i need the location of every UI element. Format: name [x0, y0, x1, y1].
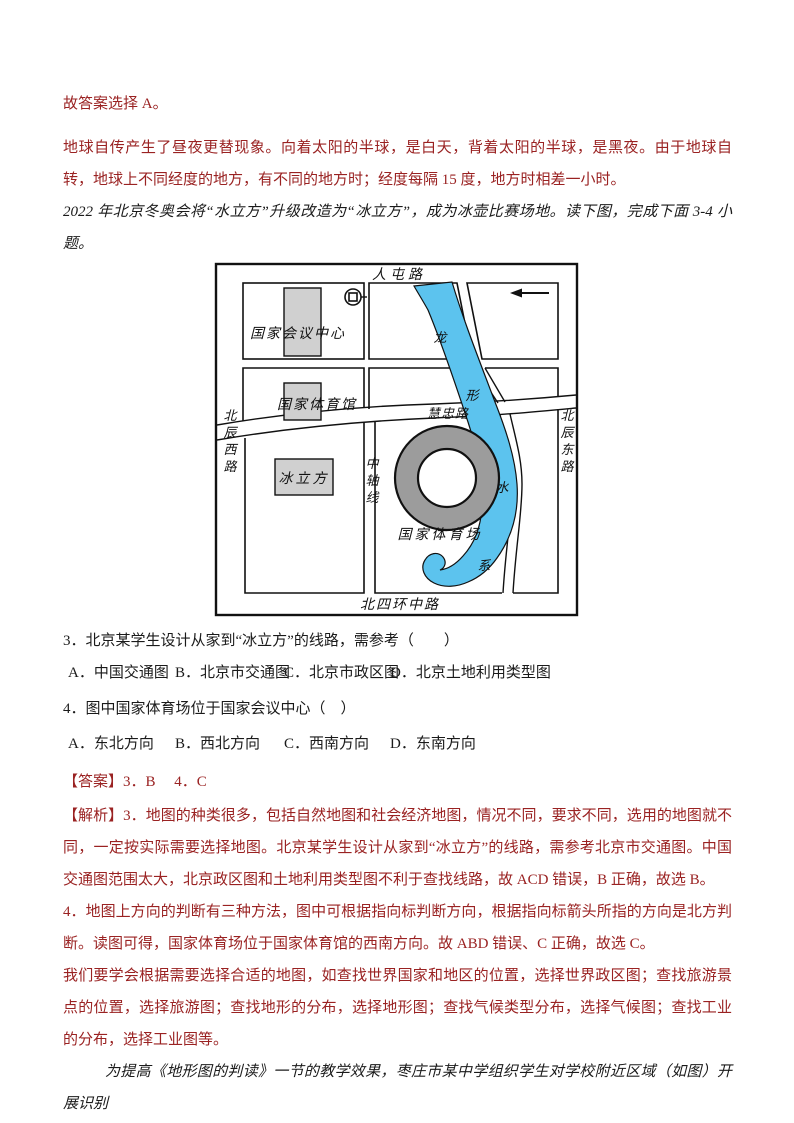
option-3c: C．北京市政区图: [284, 657, 390, 689]
river-char-shui: 水: [495, 480, 509, 495]
analysis-q4: 4．地图上方向的判断有三种方法，图中可根据指向标判断方向，根据指向标箭头所指的方…: [63, 896, 732, 960]
answer-line: 【答案】3．B 4．C: [63, 766, 732, 798]
question-3: 3．北京某学生设计从家到“冰立方”的线路，需参考（ ）: [63, 625, 732, 657]
option-4b: B．西北方向: [175, 728, 284, 760]
question-3-options: A．中国交通图 B．北京市交通图 C．北京市政区图 D．北京土地利用类型图: [63, 657, 732, 689]
exam-page: 故答案选择 A。 地球自传产生了昼夜更替现象。向着太阳的半球，是白天，背着太阳的…: [0, 0, 794, 1120]
answer-note: 故答案选择 A。: [63, 88, 732, 120]
analysis-q3: 【解析】3．地图的种类很多，包括自然地图和社会经济地图，情况不同，要求不同，选用…: [63, 800, 732, 896]
option-4c: C．西南方向: [284, 728, 390, 760]
option-3a: A．中国交通图: [68, 657, 175, 689]
road-label-huizhong: 慧忠路: [427, 406, 469, 421]
beijing-olympic-park-map: 人屯路北四环中路北辰西路北辰东路中轴线慧忠路国家会议中心国家体育馆冰立方国家体育…: [214, 262, 579, 617]
place-label-gymnasium: 国家体育馆: [277, 397, 357, 413]
stadium-ring-inner: [418, 449, 476, 507]
road-label-zhongzhouxian: 中轴线: [365, 456, 380, 505]
option-3b: B．北京市交通图: [175, 657, 284, 689]
building-convention-center: [284, 288, 321, 356]
question-4-options: A．东北方向 B．西北方向 C．西南方向 D．东南方向: [63, 728, 732, 760]
question-intro: 2022 年北京冬奥会将“水立方”升级改造为“冰立方”，成为冰壶比赛场地。读下图…: [63, 196, 732, 260]
road-label-beisihuanzhong: 北四环中路: [360, 597, 440, 613]
place-label-convention-center: 国家会议中心: [250, 326, 346, 342]
place-label-ice-cube: 冰立方: [279, 471, 330, 487]
block-north-east: [467, 283, 558, 359]
place-label-national-stadium: 国家体育场: [398, 527, 483, 543]
river-char-long: 龙: [433, 330, 448, 345]
analysis-summary: 我们要学会根据需要选择合适的地图，如查找世界国家和地区的位置，选择世界政区图；查…: [63, 960, 732, 1056]
river-char-xing: 形: [465, 388, 480, 403]
road-label-rentun: 人屯路: [372, 267, 426, 283]
option-4a: A．东北方向: [68, 728, 175, 760]
river-char-xi: 系: [477, 558, 491, 573]
option-4d: D．东南方向: [390, 728, 476, 760]
next-section-intro: 为提高《地形图的判读》一节的教学效果，枣庄市某中学组织学生对学校附近区域（如图）…: [63, 1056, 732, 1120]
option-3d: D．北京土地利用类型图: [390, 657, 551, 689]
map-figure: 人屯路北四环中路北辰西路北辰东路中轴线慧忠路国家会议中心国家体育馆冰立方国家体育…: [214, 262, 579, 617]
question-4: 4．图中国家体育场位于国家会议中心（ ）: [63, 693, 732, 725]
rotation-explanation: 地球自传产生了昼夜更替现象。向着太阳的半球，是白天，背着太阳的半球，是黑夜。由于…: [63, 132, 732, 196]
